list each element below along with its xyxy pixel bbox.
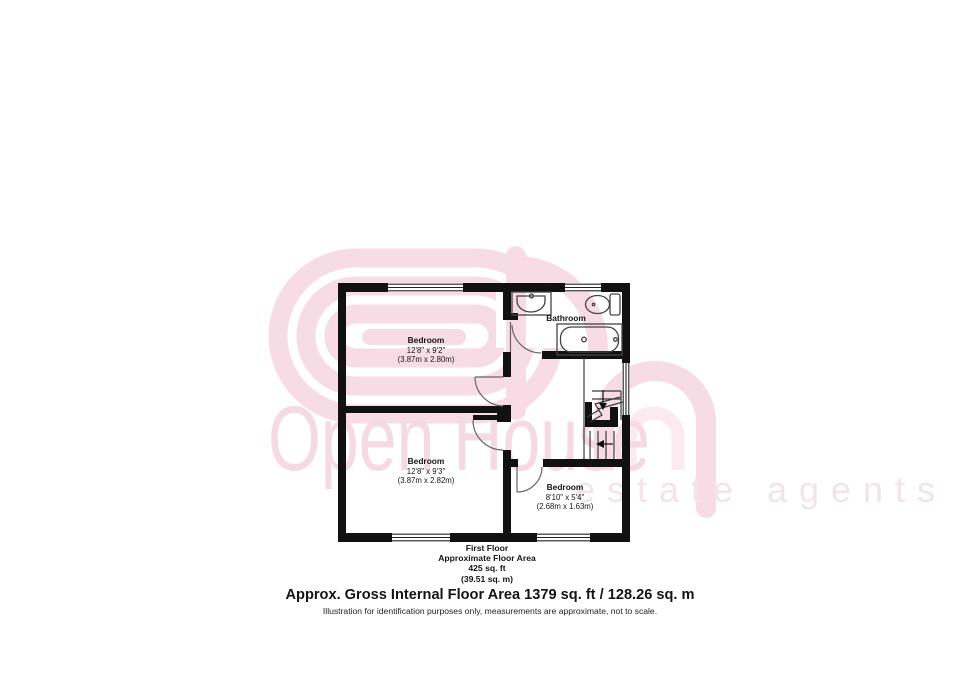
- disclaimer-text: Illustration for identification purposes…: [0, 606, 980, 616]
- window-top-bathroom: [565, 283, 601, 292]
- floor-name: First Floor: [367, 543, 607, 553]
- window-bottom-bedroom3: [537, 533, 590, 542]
- bedroom2-door: [473, 420, 503, 450]
- bathroom-door: [511, 322, 542, 353]
- bedroom3-door: [517, 467, 542, 492]
- floor-caption: First Floor Approximate Floor Area 425 s…: [367, 543, 607, 584]
- bedroom1-door: [475, 377, 503, 406]
- floor-area-metric: (39.51 sq. m): [367, 574, 607, 584]
- floor-area-label: Approximate Floor Area: [367, 553, 607, 563]
- sink: [512, 292, 551, 315]
- bathroom-fixtures: [512, 292, 622, 355]
- walls: [338, 283, 630, 542]
- gross-area-title: Approx. Gross Internal Floor Area 1379 s…: [0, 587, 980, 603]
- window-right-landing: [622, 363, 630, 415]
- toilet: [586, 294, 621, 315]
- floor-area-imperial: 425 sq. ft: [367, 563, 607, 573]
- window-top-bedroom1: [388, 283, 463, 292]
- window-bottom-bedroom2: [392, 533, 450, 542]
- bathtub: [557, 324, 622, 355]
